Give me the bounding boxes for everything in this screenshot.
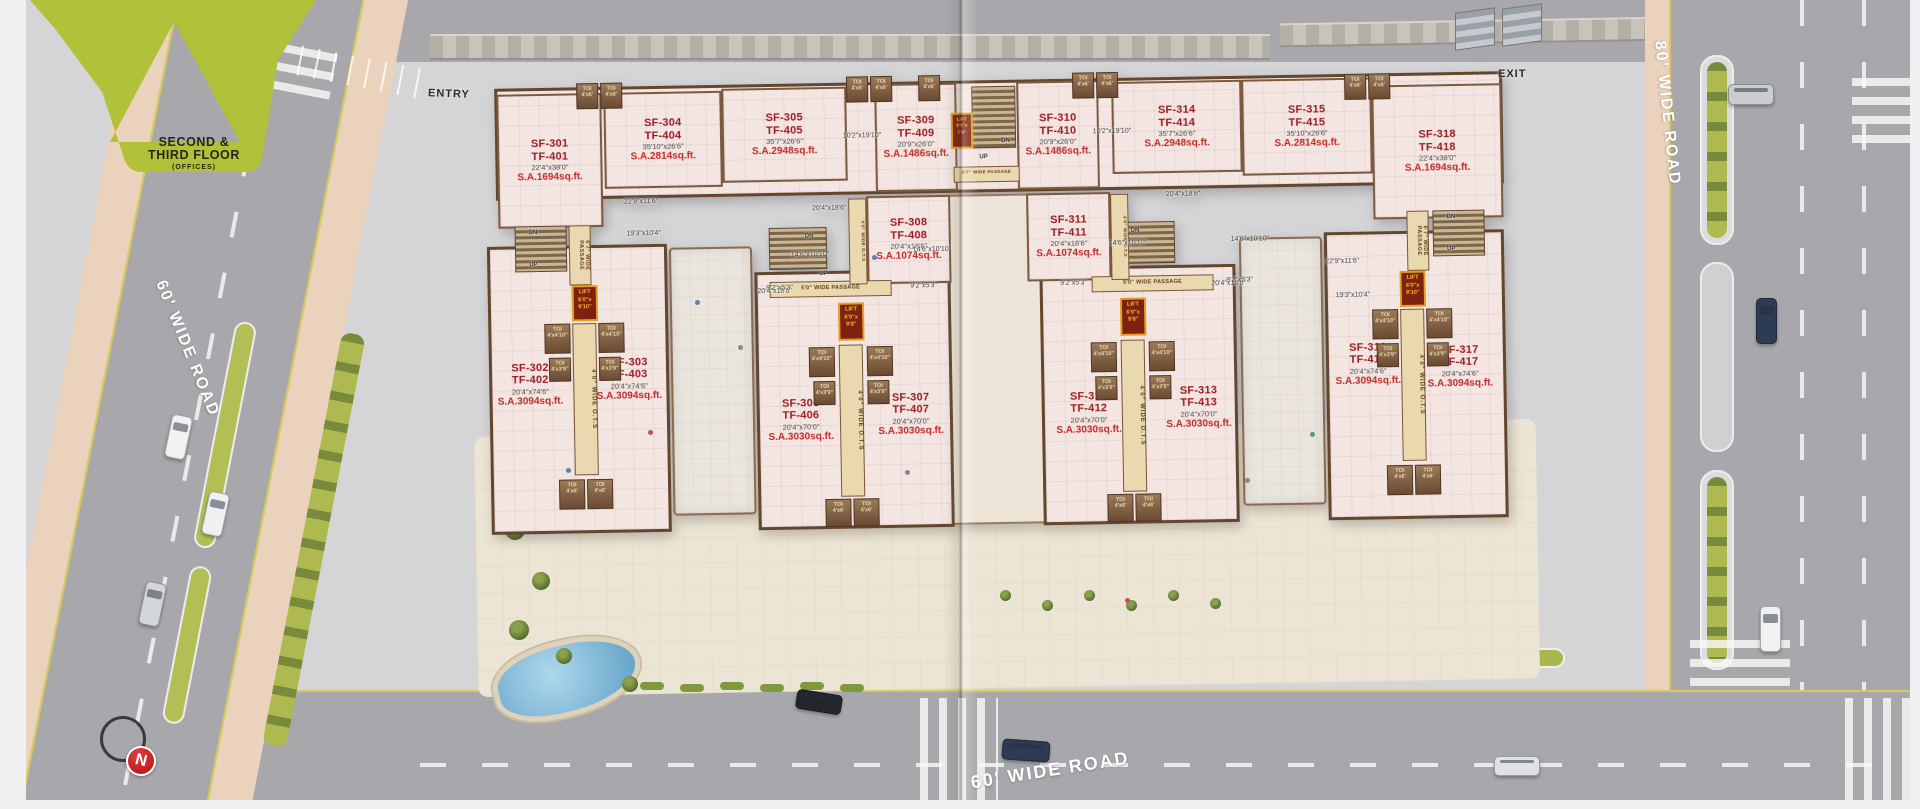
person-dot	[1245, 478, 1250, 483]
lift: LIFT6'0"x9'10"	[1399, 271, 1426, 307]
right-median-green	[1707, 62, 1727, 238]
person-dot	[1310, 432, 1315, 437]
toi-size: 4'x6'	[601, 92, 621, 99]
toi-size: 4'x6'	[577, 92, 597, 99]
toi-size: 4'x4'10"	[545, 333, 569, 340]
staircase	[769, 227, 828, 270]
toi-size: 4'x3'9"	[1150, 384, 1170, 391]
dn-label: DN	[1001, 138, 1010, 144]
unit-room-SF-318: SF-318 TF-418 22'4"x38'0" S.A.1694sq.ft.	[1371, 83, 1503, 219]
dim-label: 22'9"x11'6"	[596, 197, 686, 206]
unit-room-SF-311: SF-311 TF-411 20'4"x18'6" S.A.1074sq.ft.	[1026, 192, 1112, 281]
toi-size: 4'x4'10"	[1092, 351, 1116, 358]
title-line-3: (OFFICES)	[114, 164, 274, 171]
ots-shaft: 4'0" WIDE O.T.S	[839, 344, 866, 496]
toilet: TOI4'x6'	[559, 479, 586, 509]
toilet: TOI4'x4'10"	[1426, 308, 1453, 338]
page-margin-bottom	[0, 800, 1920, 809]
bush	[1000, 590, 1011, 601]
toilet: TOI4'x6'	[918, 75, 940, 101]
unit-area: S.A.1074sq.ft.	[1036, 248, 1102, 260]
toi-size: 4'x6'	[826, 508, 850, 515]
title-line-1: SECOND &	[114, 136, 274, 149]
title-line-2: THIRD FLOOR	[114, 149, 274, 162]
lift-size: 6'0"x	[841, 314, 862, 321]
dim-label: 20'4"x18'6"	[786, 204, 872, 212]
toilet: TOI4'x4'10"	[1372, 309, 1399, 339]
dim-label: 9'2"x5'3"	[1218, 276, 1262, 284]
tf-number: TF-401	[517, 150, 583, 163]
toilet: TOI4'x6'	[1096, 72, 1118, 98]
palm-tree	[622, 676, 638, 692]
toilet: TOI4'x3'9"	[1149, 375, 1171, 399]
toi-size: 4'x6'	[1073, 82, 1093, 89]
dn-label: DN	[805, 233, 814, 239]
lift: LIFT6'0"x9'8"	[1120, 297, 1147, 335]
north-label: N	[133, 751, 149, 771]
ots-shaft: 4'0" WIDE O.T.S	[1110, 194, 1129, 280]
sf-number: SF-304	[630, 117, 696, 130]
ots-shaft: 4'0" WIDE O.T.S	[1121, 339, 1148, 491]
toilet: TOI4'x6'	[600, 83, 622, 109]
unit-area: S.A.3094sq.ft.	[1421, 377, 1499, 390]
lift: LIFT6'0"x9'8"	[838, 302, 865, 340]
person-dot	[738, 345, 743, 350]
lift-size: 9'8"	[1123, 317, 1144, 324]
person-dot	[905, 470, 910, 475]
top-kerb	[430, 34, 1270, 60]
lift-size: 6'0"x	[1402, 282, 1423, 289]
lift-size: 7'6"	[953, 129, 970, 135]
palm-tree	[532, 572, 550, 590]
person-dot	[1125, 598, 1130, 603]
toi-size: 4'x3'9"	[1096, 385, 1116, 392]
toi-size: 4'x4'10"	[1427, 317, 1451, 324]
dim-label: 9'2"x5'3"	[902, 282, 946, 290]
dim-label: 14'6"x10'10"	[1085, 239, 1171, 247]
toilet: TOI4'x4'10"	[809, 347, 836, 377]
crosswalk	[1845, 698, 1915, 802]
dim-label: 14'6"x10'10"	[1207, 235, 1293, 243]
page-title: SECOND & THIRD FLOOR (OFFICES)	[114, 136, 274, 171]
sf-number: SF-310	[1025, 112, 1091, 125]
toi-size: 4'x6'	[1108, 503, 1132, 510]
toilet: TOI4'x4'10"	[544, 324, 571, 354]
dim-label: 9'2"x5'3"	[758, 284, 802, 292]
toi-size: 4'x3'9"	[1428, 352, 1448, 359]
toi-size: 4'x6'	[1388, 474, 1412, 481]
unit-area: S.A.3094sq.ft.	[491, 396, 569, 409]
unit-room-SF-308: SF-308 TF-408 20'4"x18'6" S.A.1074sq.ft.	[866, 195, 952, 284]
up-label: UP	[1447, 246, 1455, 252]
sf-number: SF-308	[876, 216, 942, 229]
passage-label: 6'7" WIDE PASSAGE	[569, 225, 592, 285]
toi-size: 4'x6'	[588, 488, 612, 495]
toi-size: 4'x3'9"	[550, 367, 570, 374]
staircase	[515, 226, 568, 273]
person-dot	[648, 430, 653, 435]
hedge	[680, 684, 704, 692]
toilet: TOI4'x6'	[1072, 72, 1094, 98]
toi-size: 4'x6'	[871, 85, 891, 92]
toi-size: 4'x4'10"	[599, 332, 623, 339]
hedge	[760, 684, 784, 692]
lift-label: LIFT	[1402, 275, 1423, 282]
palm-tree	[509, 620, 529, 640]
toi-size: 4'x6'	[1136, 503, 1160, 510]
toilet: TOI4'x6'	[1107, 494, 1133, 522]
car	[1494, 756, 1540, 776]
toi-size: 4'x4'10"	[1373, 318, 1397, 325]
sf-number: SF-311	[1036, 214, 1102, 227]
person-dot	[872, 255, 877, 260]
bush	[1084, 590, 1095, 601]
toi-size: 4'x4'10"	[1150, 350, 1174, 357]
palm-tree	[556, 648, 572, 664]
tf-number: TF-406	[762, 409, 840, 423]
car	[1756, 298, 1777, 344]
signboard	[1502, 3, 1542, 47]
car	[1728, 84, 1774, 105]
lift-size: 9'10"	[574, 304, 595, 311]
lift-label: LIFT	[1122, 302, 1143, 309]
dim-label: 9'2"x5'3"	[1052, 279, 1096, 287]
toilet: TOI4'x6'	[1368, 73, 1390, 99]
car	[1001, 738, 1050, 762]
person-dot	[566, 468, 571, 473]
dim-label: 14'6"x10'10"	[889, 245, 975, 253]
toi-size: 4'x3'9"	[814, 390, 834, 397]
car	[1760, 606, 1781, 652]
hedge	[840, 684, 864, 692]
sf-number: SF-305	[751, 112, 817, 125]
toilet: TOI4'x6'	[587, 479, 614, 509]
exit-label: EXIT	[1498, 68, 1526, 80]
unit-area: S.A.3030sq.ft.	[1160, 418, 1238, 431]
building-floor-plate: SF-301 TF-401 22'4"x38'0" S.A.1694sq.ft.…	[466, 63, 1534, 551]
toilet: TOI4'x3'9"	[813, 381, 835, 405]
bush	[1210, 598, 1221, 609]
unit-area: S.A.2948sq.ft.	[752, 146, 818, 158]
unit-area: S.A.3030sq.ft.	[762, 431, 840, 444]
tf-number: TF-412	[1050, 402, 1128, 416]
toi-size: 4'x3'9"	[868, 389, 888, 396]
bush	[1168, 590, 1179, 601]
toilet: TOI4'x6'	[825, 499, 851, 527]
hedge	[640, 682, 664, 690]
courtyard	[669, 246, 757, 515]
up-label: UP	[819, 271, 827, 277]
toi-size: 4'x6'	[847, 86, 867, 93]
toilet: TOI4'x6'	[1135, 493, 1161, 521]
toilet: TOI4'x4'10"	[867, 346, 894, 376]
hedge	[720, 682, 744, 690]
unit-area: S.A.1694sq.ft.	[517, 172, 583, 184]
right-median	[1700, 262, 1734, 452]
sf-number: SF-301	[517, 138, 583, 151]
tf-number: TF-405	[751, 124, 817, 137]
right-median-green	[1707, 477, 1727, 663]
sf-number: SF-318	[1404, 128, 1470, 141]
unit-label: SF-305 TF-405 35'7"x26'6" S.A.2948sq.ft.	[751, 112, 817, 158]
lift-size: 9'10"	[1402, 290, 1423, 297]
tf-number: TF-418	[1404, 140, 1470, 153]
title-banner: SECOND & THIRD FLOOR (OFFICES)	[28, 0, 318, 178]
toi-size: 4'x6'	[1097, 81, 1117, 88]
passage-label: 6'7" WIDE PASSAGE	[954, 166, 1020, 183]
toilet: TOI4'x6'	[853, 498, 879, 526]
bottom-road-lane-line	[420, 763, 1900, 767]
unit-room-SF-301: SF-301 TF-401 22'4"x38'0" S.A.1694sq.ft.	[496, 93, 603, 229]
toi-size: 4'x3'9"	[600, 366, 620, 373]
right-road-lane-line	[1800, 0, 1804, 809]
ots-shaft: 4'0" WIDE O.T.S	[572, 323, 599, 475]
lift: LIFT6'0"x9'10"	[572, 285, 599, 321]
passage-label: 6'7" WIDE PASSAGE	[1406, 211, 1429, 271]
sf-number: SF-314	[1144, 104, 1210, 117]
toilet: TOI4'x6'	[1344, 74, 1366, 100]
unit-area: S.A.2814sq.ft.	[630, 151, 696, 163]
unit-area: S.A.2814sq.ft.	[1274, 137, 1340, 149]
toilet: TOI4'x6'	[870, 76, 892, 102]
toilet: TOI4'x3'9"	[1427, 342, 1449, 366]
unit-area: S.A.3094sq.ft.	[591, 390, 667, 403]
up-label: UP	[529, 262, 537, 268]
entry-label: ENTRY	[428, 87, 470, 100]
toi-size: 4'x4'10"	[810, 356, 834, 363]
sf-number: SF-309	[883, 114, 949, 127]
unit-area: S.A.1694sq.ft.	[1405, 162, 1471, 174]
toilet: TOI4'x6'	[1415, 464, 1442, 494]
toi-size: 4'x4'10"	[868, 355, 892, 362]
dim-label: 20'4"x18'6"	[1140, 190, 1226, 198]
unit-area: S.A.2948sq.ft.	[1144, 138, 1210, 150]
tf-number: TF-408	[876, 229, 942, 242]
unit-area: S.A.3030sq.ft.	[872, 425, 950, 438]
site-plan: SF-301 TF-401 22'4"x38'0" S.A.1694sq.ft.…	[0, 0, 1920, 809]
ots-shaft: 4'0" WIDE O.T.S	[1400, 309, 1427, 461]
unit-label: SF-308 TF-408 20'4"x18'6" S.A.1074sq.ft.	[876, 216, 942, 262]
toi-size: 4'x6'	[560, 489, 584, 496]
lift-size: 6'0"x	[1123, 309, 1144, 316]
signboard	[1455, 7, 1495, 51]
unit-label: SF-318 TF-418 22'4"x38'0" S.A.1694sq.ft.	[1404, 128, 1470, 174]
toilet: TOI4'x6'	[576, 83, 598, 109]
toi-size: 4'x3'9"	[1378, 352, 1398, 359]
unit-label: SF-304 TF-404 35'10"x26'6" S.A.2814sq.ft…	[630, 117, 696, 163]
unit-area: S.A.1486sq.ft.	[883, 148, 949, 160]
unit-area: S.A.3030sq.ft.	[1050, 424, 1128, 437]
tf-number: TF-404	[630, 129, 696, 142]
toilet: TOI4'x4'10"	[1091, 342, 1118, 372]
staircase	[1432, 210, 1485, 257]
tf-number: TF-411	[1036, 226, 1102, 239]
bush	[1042, 600, 1053, 611]
toilet: TOI4'x3'9"	[1377, 343, 1399, 367]
toi-size: 4'x6'	[1345, 83, 1365, 90]
toilet: TOI4'x4'10"	[1149, 341, 1176, 371]
unit-label: SF-311 TF-411 20'4"x18'6" S.A.1074sq.ft.	[1036, 214, 1102, 260]
unit-label: SF-315 TF-415 35'10"x26'6" S.A.2814sq.ft…	[1274, 103, 1340, 149]
toilet: TOI4'x3'9"	[549, 357, 571, 381]
toilet: TOI4'x3'9"	[1095, 376, 1117, 400]
page-margin-right	[1910, 0, 1920, 809]
tf-number: TF-407	[872, 403, 950, 417]
toi-size: 4'x6'	[1416, 474, 1440, 481]
dn-label: DN	[1446, 214, 1455, 220]
sf-number: SF-315	[1274, 103, 1340, 116]
unit-area: S.A.3094sq.ft.	[1329, 375, 1407, 388]
toilet: TOI4'x4'10"	[598, 323, 625, 353]
toi-size: 4'x6'	[1369, 82, 1389, 89]
dn-label: DN	[529, 230, 538, 236]
person-dot	[695, 300, 700, 305]
dim-label: 14'6"x10'10"	[767, 251, 853, 259]
toilet: TOI4'x3'9"	[599, 357, 621, 381]
toilet: TOI4'x6'	[846, 76, 868, 102]
page-margin-left	[0, 0, 26, 809]
dn-label: DN	[1131, 228, 1140, 234]
toi-size: 4'x6'	[919, 84, 939, 91]
toilet: TOI4'x3'9"	[867, 380, 889, 404]
unit-area: S.A.1486sq.ft.	[1025, 146, 1091, 158]
unit-label: SF-301 TF-401 22'4"x38'0" S.A.1694sq.ft.	[517, 138, 583, 184]
lift-size: 9'8"	[841, 322, 862, 329]
lift-size: 5'0"x	[953, 123, 970, 129]
toi-size: 4'x6'	[854, 507, 878, 514]
lift-size: 6'0"x	[574, 297, 595, 304]
up-label: UP	[979, 154, 987, 160]
tf-number: TF-415	[1274, 116, 1340, 129]
toilet: TOI4'x6'	[1387, 465, 1414, 495]
lift: LIFT5'0"x7'6"	[951, 112, 974, 148]
dim-label: 19'3"x10'4"	[599, 229, 689, 238]
lift-label: LIFT	[841, 307, 862, 314]
lift-label: LIFT	[574, 289, 595, 296]
